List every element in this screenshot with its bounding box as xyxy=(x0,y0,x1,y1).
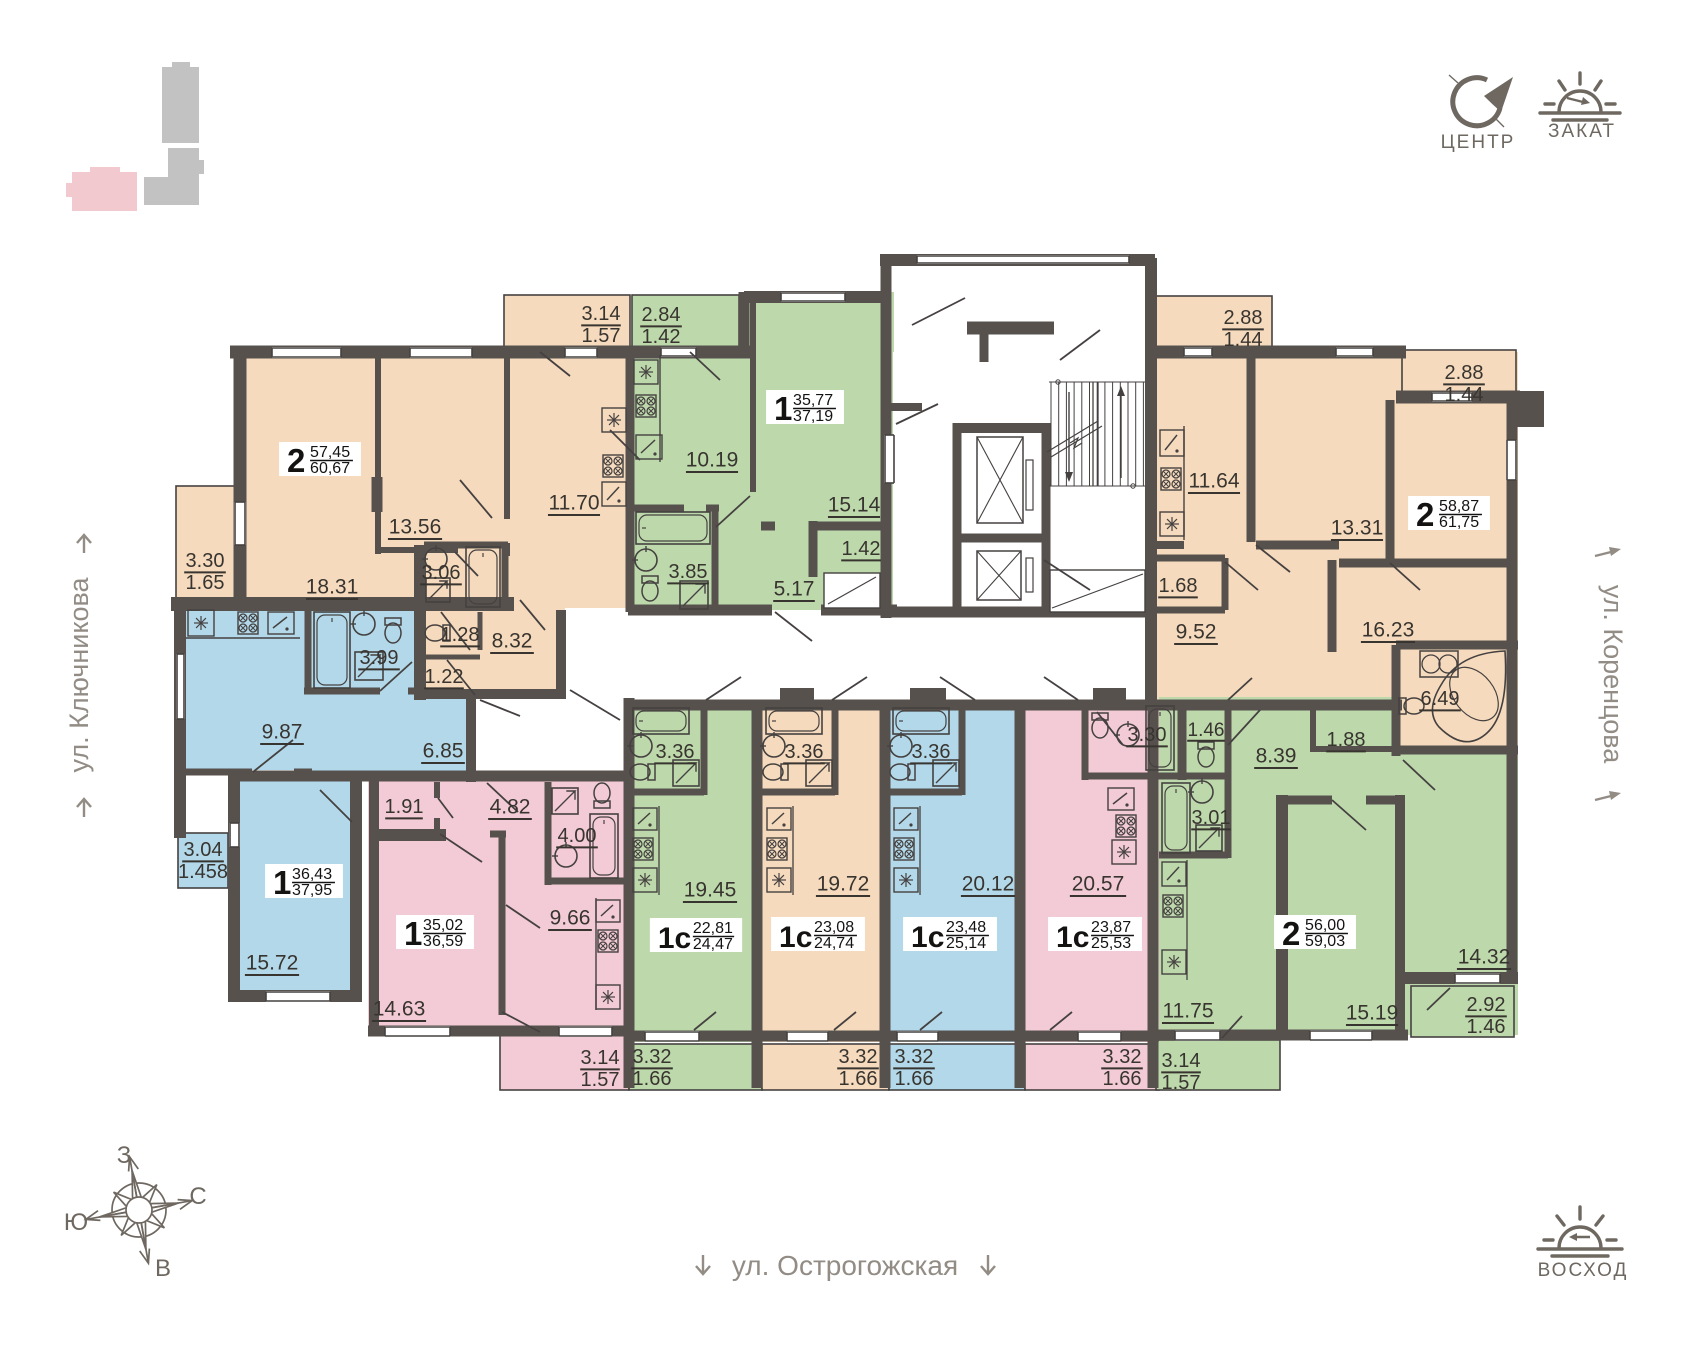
svg-text:1: 1 xyxy=(774,390,792,427)
svg-text:2.92: 2.92 xyxy=(1467,994,1506,1016)
svg-text:1.68: 1.68 xyxy=(1159,575,1198,597)
svg-text:1.22: 1.22 xyxy=(425,666,464,688)
svg-text:3.06: 3.06 xyxy=(422,562,461,584)
svg-text:1с: 1с xyxy=(658,922,691,955)
svg-text:23,08: 23,08 xyxy=(814,919,854,936)
svg-text:3.85: 3.85 xyxy=(669,561,708,583)
svg-text:56,00: 56,00 xyxy=(1305,917,1345,934)
svg-text:1.42: 1.42 xyxy=(842,538,881,560)
svg-text:3.99: 3.99 xyxy=(360,647,399,669)
svg-text:1.46: 1.46 xyxy=(1188,720,1225,741)
svg-text:18.31: 18.31 xyxy=(306,576,359,599)
svg-text:2.88: 2.88 xyxy=(1224,307,1263,329)
svg-text:1.66: 1.66 xyxy=(1103,1068,1142,1090)
svg-text:24,47: 24,47 xyxy=(693,936,733,953)
svg-text:2.88: 2.88 xyxy=(1445,362,1484,384)
svg-text:59,03: 59,03 xyxy=(1305,933,1345,950)
svg-text:19.72: 19.72 xyxy=(817,873,870,896)
svg-text:1.28: 1.28 xyxy=(441,624,480,646)
svg-text:3.32: 3.32 xyxy=(839,1046,878,1068)
svg-text:1.57: 1.57 xyxy=(1162,1072,1201,1094)
svg-text:З: З xyxy=(117,1142,132,1169)
svg-text:20.12: 20.12 xyxy=(962,873,1015,896)
svg-text:1: 1 xyxy=(404,915,422,952)
svg-text:1с: 1с xyxy=(779,921,812,954)
svg-text:11.75: 11.75 xyxy=(1163,1000,1214,1023)
svg-text:9.66: 9.66 xyxy=(550,907,591,930)
svg-text:20.57: 20.57 xyxy=(1072,873,1125,896)
svg-text:15.72: 15.72 xyxy=(246,952,299,975)
svg-text:1.65: 1.65 xyxy=(186,572,225,594)
svg-text:4.00: 4.00 xyxy=(558,825,597,847)
svg-text:57,45: 57,45 xyxy=(310,444,350,461)
svg-text:Ю: Ю xyxy=(64,1209,88,1236)
svg-text:3.04: 3.04 xyxy=(184,839,223,861)
svg-text:25,53: 25,53 xyxy=(1091,935,1131,952)
svg-text:1.57: 1.57 xyxy=(582,325,621,347)
svg-text:8.39: 8.39 xyxy=(1256,745,1297,768)
svg-text:19.45: 19.45 xyxy=(684,879,737,902)
svg-text:1с: 1с xyxy=(911,921,944,954)
svg-text:2: 2 xyxy=(287,442,305,479)
svg-text:11.64: 11.64 xyxy=(1189,470,1240,493)
svg-text:3.36: 3.36 xyxy=(656,741,695,763)
svg-text:1.44: 1.44 xyxy=(1224,329,1263,351)
svg-text:С: С xyxy=(189,1183,206,1210)
svg-text:3.36: 3.36 xyxy=(785,741,824,763)
svg-text:3.32: 3.32 xyxy=(633,1046,672,1068)
svg-text:ЦЕНТР: ЦЕНТР xyxy=(1441,132,1516,153)
svg-text:3.30: 3.30 xyxy=(1128,724,1167,746)
svg-text:1с: 1с xyxy=(1056,921,1089,954)
svg-text:10.19: 10.19 xyxy=(686,449,739,472)
svg-text:1.91: 1.91 xyxy=(385,796,424,818)
svg-text:3.14: 3.14 xyxy=(581,1047,620,1069)
svg-text:13.31: 13.31 xyxy=(1331,517,1384,540)
svg-text:1.88: 1.88 xyxy=(1327,729,1366,751)
svg-text:9.52: 9.52 xyxy=(1176,621,1217,644)
svg-text:9.87: 9.87 xyxy=(262,721,303,744)
svg-text:23,87: 23,87 xyxy=(1091,919,1131,936)
svg-text:2.84: 2.84 xyxy=(642,304,681,326)
svg-text:35,02: 35,02 xyxy=(423,917,463,934)
svg-text:37,95: 37,95 xyxy=(292,882,332,899)
svg-text:ул. Ключникова: ул. Ключникова xyxy=(64,576,94,772)
svg-text:1.66: 1.66 xyxy=(633,1068,672,1090)
svg-text:23,48: 23,48 xyxy=(946,919,986,936)
svg-text:13.56: 13.56 xyxy=(389,516,442,539)
svg-text:3.32: 3.32 xyxy=(895,1046,934,1068)
svg-text:8.32: 8.32 xyxy=(492,630,533,653)
svg-text:4.82: 4.82 xyxy=(490,796,531,819)
svg-text:1.44: 1.44 xyxy=(1445,384,1484,406)
svg-text:15.14: 15.14 xyxy=(828,494,881,517)
svg-text:16.23: 16.23 xyxy=(1362,619,1415,642)
svg-text:61,75: 61,75 xyxy=(1439,514,1479,531)
svg-text:1: 1 xyxy=(273,864,291,901)
svg-text:60,67: 60,67 xyxy=(310,460,350,477)
svg-text:ул. Коренцова: ул. Коренцова xyxy=(1598,585,1628,765)
svg-text:36,43: 36,43 xyxy=(292,866,332,883)
svg-text:ул. Острогожская: ул. Острогожская xyxy=(732,1250,958,1281)
svg-text:3.36: 3.36 xyxy=(912,741,951,763)
svg-text:1.42: 1.42 xyxy=(642,326,681,348)
svg-text:3.32: 3.32 xyxy=(1103,1046,1142,1068)
svg-text:58,87: 58,87 xyxy=(1439,498,1479,515)
svg-text:1.46: 1.46 xyxy=(1467,1016,1506,1038)
svg-text:В: В xyxy=(155,1255,171,1282)
svg-text:15.19: 15.19 xyxy=(1346,1002,1399,1025)
svg-text:2: 2 xyxy=(1282,915,1300,952)
svg-text:14.32: 14.32 xyxy=(1458,946,1511,969)
svg-text:37,19: 37,19 xyxy=(793,408,833,425)
svg-text:22,81: 22,81 xyxy=(693,920,733,937)
svg-text:11.70: 11.70 xyxy=(549,492,600,515)
svg-text:3.14: 3.14 xyxy=(1162,1050,1201,1072)
svg-text:25,14: 25,14 xyxy=(946,935,986,952)
svg-text:ВОСХОД: ВОСХОД xyxy=(1538,1260,1629,1281)
svg-text:36,59: 36,59 xyxy=(423,933,463,950)
svg-text:35,77: 35,77 xyxy=(793,392,833,409)
svg-text:1.66: 1.66 xyxy=(895,1068,934,1090)
svg-text:24,74: 24,74 xyxy=(814,935,854,952)
svg-text:1.57: 1.57 xyxy=(581,1069,620,1091)
svg-text:3.14: 3.14 xyxy=(582,303,621,325)
svg-text:3.30: 3.30 xyxy=(186,550,225,572)
svg-text:1.458: 1.458 xyxy=(178,861,228,883)
svg-text:6.85: 6.85 xyxy=(423,740,464,763)
svg-text:1.66: 1.66 xyxy=(839,1068,878,1090)
svg-text:ЗАКАТ: ЗАКАТ xyxy=(1548,121,1616,142)
svg-text:6.49: 6.49 xyxy=(1421,688,1460,710)
svg-text:5.17: 5.17 xyxy=(774,578,815,601)
svg-text:3.01: 3.01 xyxy=(1192,807,1231,829)
svg-text:2: 2 xyxy=(1416,496,1434,533)
svg-text:14.63: 14.63 xyxy=(373,998,426,1021)
